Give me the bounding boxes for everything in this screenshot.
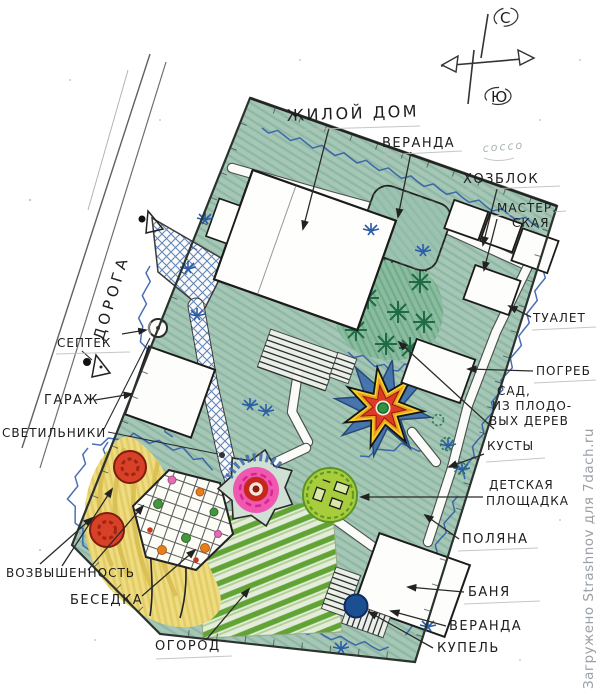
label-bushes: КУСТЫ <box>487 439 534 453</box>
children-playground <box>303 468 357 522</box>
gate-dot-icon <box>139 216 146 223</box>
label-orchard-1: САД, <box>497 384 531 398</box>
label-house: ЖИЛОЙ ДОМ <box>286 101 419 125</box>
lamp-dot-icon <box>219 452 225 458</box>
label-gazebo: БЕСЕДКА <box>70 593 143 608</box>
label-toilet: ТУАЛЕТ <box>532 311 586 325</box>
label-vegetable-garden: ОГОРОД <box>155 639 221 654</box>
septic-dot-icon <box>83 358 91 366</box>
label-playground-2: ПЛОЩАДКА <box>486 494 569 508</box>
garden-plan-canvas: С Ю соссо <box>0 0 600 694</box>
compass <box>441 5 534 104</box>
label-hill: ВОЗВЫШЕННОСТЬ <box>6 566 135 580</box>
compass-north-label: С <box>500 9 510 27</box>
compass-west-arrow-icon <box>442 56 458 72</box>
label-plunge-pool: КУПЕЛЬ <box>437 641 500 656</box>
label-garage: ГАРАЖ <box>44 393 99 408</box>
pencil-scribble: соссо <box>482 138 525 155</box>
label-bathhouse: БАНЯ <box>468 585 511 600</box>
label-orchard-2: ИЗ ПЛОДО- <box>492 399 572 413</box>
label-bath-veranda: ВЕРАНДА <box>449 619 522 634</box>
label-glade: ПОЛЯНА <box>462 532 528 547</box>
watermark-text: Загружено Strashnov для 7dach.ru <box>581 428 597 689</box>
label-lamps: СВЕТИЛЬНИКИ <box>2 426 106 440</box>
label-orchard-3: ВЫХ ДЕРЕВ <box>489 414 569 428</box>
label-workshop-1: МАСТЕР. <box>497 201 557 215</box>
plunge-pool-circle <box>345 595 368 618</box>
compass-east-arrow-icon <box>518 50 534 65</box>
compass-south-label: Ю <box>491 88 507 106</box>
label-road: ДОРОГА <box>90 253 133 342</box>
label-utility-block: ХОЗБЛОК <box>463 172 539 187</box>
label-cellar: ПОГРЕБ <box>536 364 591 378</box>
label-workshop-2: СКАЯ <box>512 216 549 230</box>
label-house-veranda: ВЕРАНДА <box>382 136 455 151</box>
label-playground-1: ДЕТСКАЯ <box>489 478 554 492</box>
garden-plan-page: С Ю соссо <box>0 0 600 694</box>
